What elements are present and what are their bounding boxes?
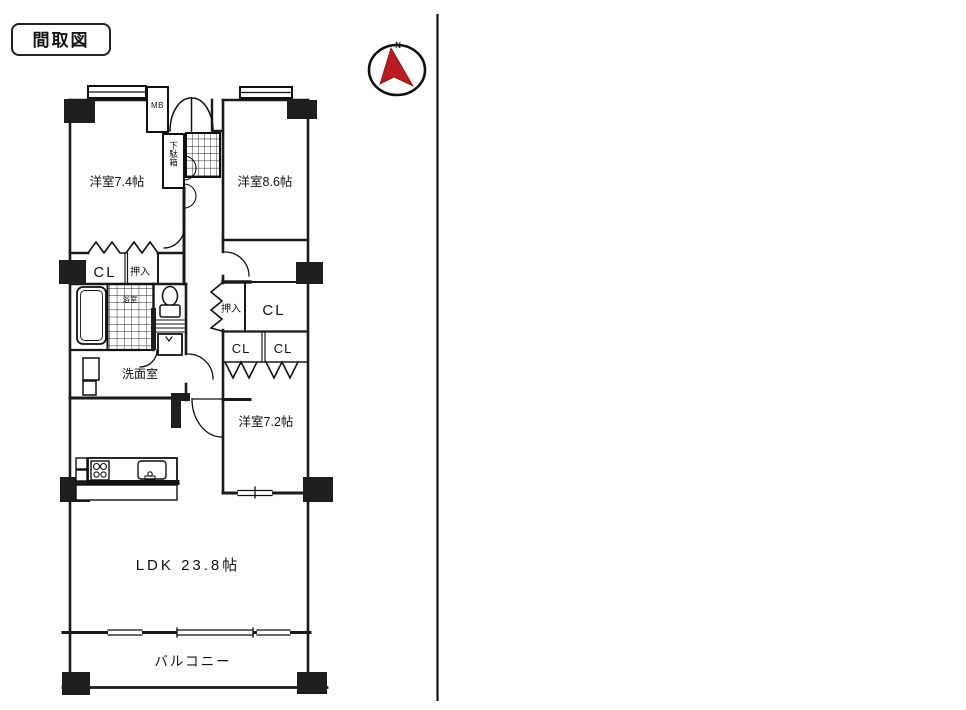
window-top-right <box>240 87 292 98</box>
label-balcony: バルコニー <box>154 654 231 669</box>
shelf-slats <box>154 320 184 332</box>
label-oshiire-e: 押入 <box>221 302 241 315</box>
floorplan-page: 間取図 N <box>0 0 966 710</box>
bath-label: 浴室 <box>123 294 138 304</box>
door-hall-ldk <box>192 399 222 437</box>
label-closet-s2: CL <box>274 341 293 356</box>
door-bedroom1 <box>164 228 184 248</box>
counter-lower-band <box>76 485 177 500</box>
kitchen-partition-wall <box>171 393 190 428</box>
meter-box-label: MB <box>151 101 164 110</box>
label-bedroom-86: 洋室8.6帖 <box>238 174 293 189</box>
washing-machine-icon <box>158 334 182 355</box>
label-bedroom-74: 洋室7.4帖 <box>90 174 145 189</box>
bathroom-tile-floor <box>108 284 154 350</box>
floor-plan: MB 下駄箱 <box>59 86 333 695</box>
window-bedroom3-south <box>238 487 272 498</box>
bathroom: 浴室 <box>77 284 154 350</box>
wc-partition <box>151 308 156 350</box>
sink-icon <box>138 461 166 480</box>
floorplan-canvas: 間取図 N <box>0 0 966 710</box>
entrance-double-door <box>170 98 213 131</box>
washroom-cabinet <box>83 358 99 380</box>
door-bathroom <box>140 350 157 367</box>
label-ldk: LDK 23.8帖 <box>136 557 241 574</box>
shoe-cabinet-label: 下駄箱 <box>169 141 179 167</box>
north-compass-icon: N <box>369 41 425 95</box>
page-title: 間取図 <box>33 31 90 50</box>
label-oshiire-nw: 押入 <box>130 265 150 278</box>
toilet-icon <box>163 287 178 306</box>
entrance-tile-floor <box>186 133 220 177</box>
window-top-left <box>88 86 146 98</box>
north-label: N <box>395 41 401 50</box>
door-washroom <box>188 354 213 379</box>
window-ldk-south <box>108 628 290 637</box>
label-washroom: 洗面室 <box>122 366 158 381</box>
kitchen <box>76 393 190 500</box>
label-closet-e: CL <box>262 302 285 319</box>
washroom-cabinet-2 <box>83 381 96 395</box>
label-closet-nw: CL <box>93 264 116 281</box>
door-bedroom2 <box>225 252 249 276</box>
title-box: 間取図 <box>12 24 110 55</box>
bathtub-icon <box>77 287 106 344</box>
room-labels: 洋室7.4帖 洋室8.6帖 洋室7.2帖 LDK 23.8帖 バルコニー 洗面室 <box>90 174 294 669</box>
label-closet-s1: CL <box>232 341 251 356</box>
label-bedroom-72: 洋室7.2帖 <box>239 414 294 429</box>
